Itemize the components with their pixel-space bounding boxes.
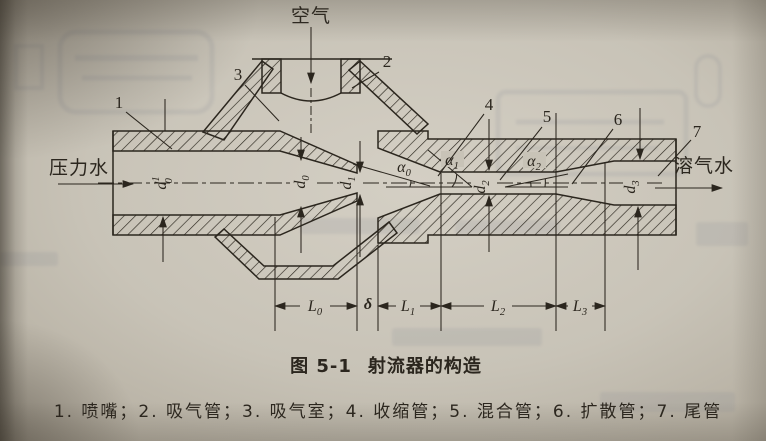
caption-text: 图 5-1射流器的构造 xyxy=(290,355,482,377)
part-2-callout: 2 xyxy=(383,52,392,71)
pressure-water-label: 压力水 xyxy=(49,157,109,179)
part-5-callout: 5 xyxy=(543,107,552,126)
delta-label: δ xyxy=(364,296,372,313)
part-3-callout: 3 xyxy=(234,65,243,84)
figure-5-1-ejector-diagram: α0 α1 α2 d10 d0 d1 d2 d3 xyxy=(0,0,766,441)
legend-text: 1. 喷嘴；2. 吸气管；3. 吸气室；4. 收缩管；5. 混合管；6. 扩散管… xyxy=(54,402,722,422)
dissolved-gas-water-label: 溶气水 xyxy=(674,155,734,177)
part-1-callout: 1 xyxy=(115,93,124,112)
air-inlet-label: 空气 xyxy=(291,5,331,27)
part-4-callout: 4 xyxy=(485,95,494,114)
book-page-photo: α0 α1 α2 d10 d0 d1 d2 d3 xyxy=(0,0,766,441)
part-7-callout: 7 xyxy=(693,122,702,141)
part-6-callout: 6 xyxy=(614,110,623,129)
